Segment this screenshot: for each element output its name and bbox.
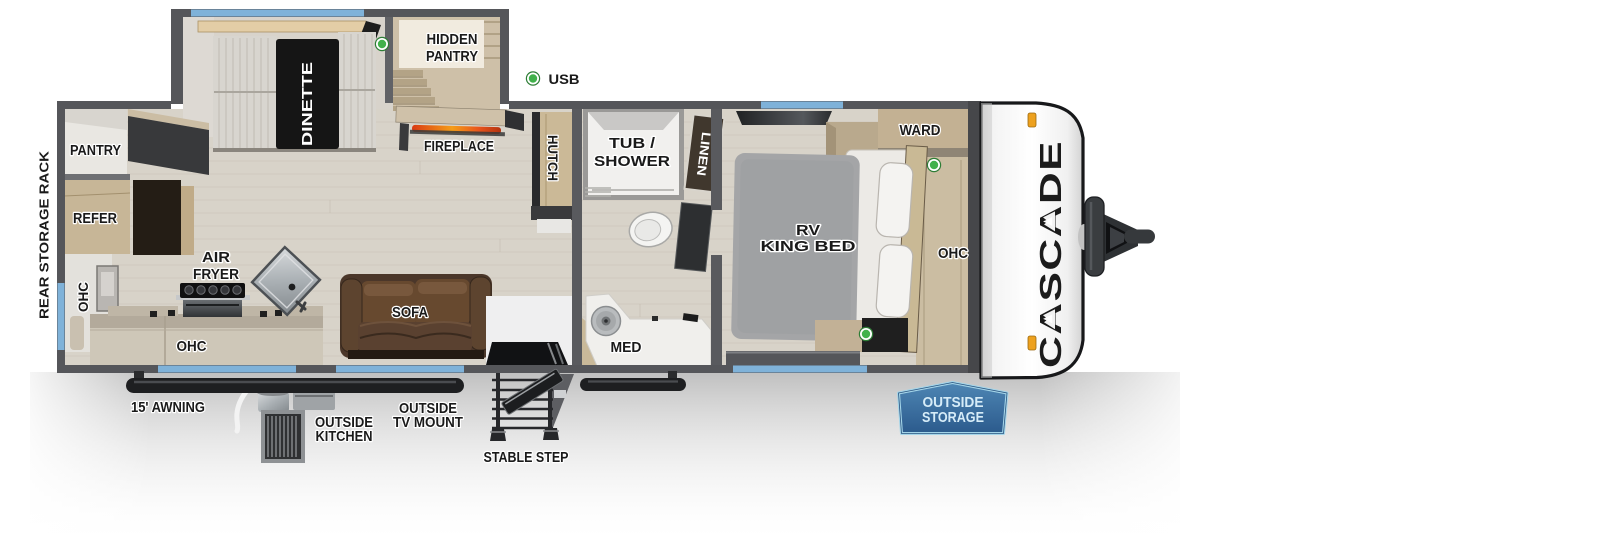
svg-text:OHC: OHC bbox=[75, 282, 91, 312]
svg-text:PANTRY: PANTRY bbox=[426, 48, 478, 65]
svg-text:KITCHEN: KITCHEN bbox=[316, 428, 373, 445]
svg-text:RV: RV bbox=[796, 222, 820, 239]
svg-text:REAR STORAGE RACK: REAR STORAGE RACK bbox=[37, 150, 52, 319]
svg-text:FRYER: FRYER bbox=[193, 266, 239, 283]
svg-text:CASCADE: CASCADE bbox=[1033, 140, 1068, 368]
svg-text:REFER: REFER bbox=[73, 210, 117, 227]
svg-text:MED: MED bbox=[611, 339, 642, 356]
svg-text:SHOWER: SHOWER bbox=[594, 153, 670, 170]
svg-text:15' AWNING: 15' AWNING bbox=[131, 399, 205, 416]
svg-text:USB: USB bbox=[549, 71, 580, 87]
svg-text:SOFA: SOFA bbox=[392, 304, 428, 321]
svg-text:WARD: WARD bbox=[900, 122, 941, 139]
svg-text:AIR: AIR bbox=[202, 249, 230, 266]
svg-text:OHC: OHC bbox=[938, 245, 968, 262]
svg-text:OHC: OHC bbox=[177, 338, 207, 355]
svg-text:KING BED: KING BED bbox=[761, 238, 856, 255]
svg-text:DINETTE: DINETTE bbox=[299, 62, 316, 146]
svg-text:HIDDEN: HIDDEN bbox=[427, 31, 478, 48]
svg-text:PANTRY: PANTRY bbox=[70, 142, 121, 159]
svg-text:HUTCH: HUTCH bbox=[545, 135, 561, 181]
svg-text:STABLE STEP: STABLE STEP bbox=[484, 449, 569, 466]
svg-text:STORAGE: STORAGE bbox=[922, 410, 984, 426]
svg-text:TUB /: TUB / bbox=[609, 135, 656, 152]
svg-text:OUTSIDE: OUTSIDE bbox=[923, 395, 984, 411]
svg-text:FIREPLACE: FIREPLACE bbox=[424, 138, 494, 155]
svg-text:TV MOUNT: TV MOUNT bbox=[393, 414, 463, 431]
